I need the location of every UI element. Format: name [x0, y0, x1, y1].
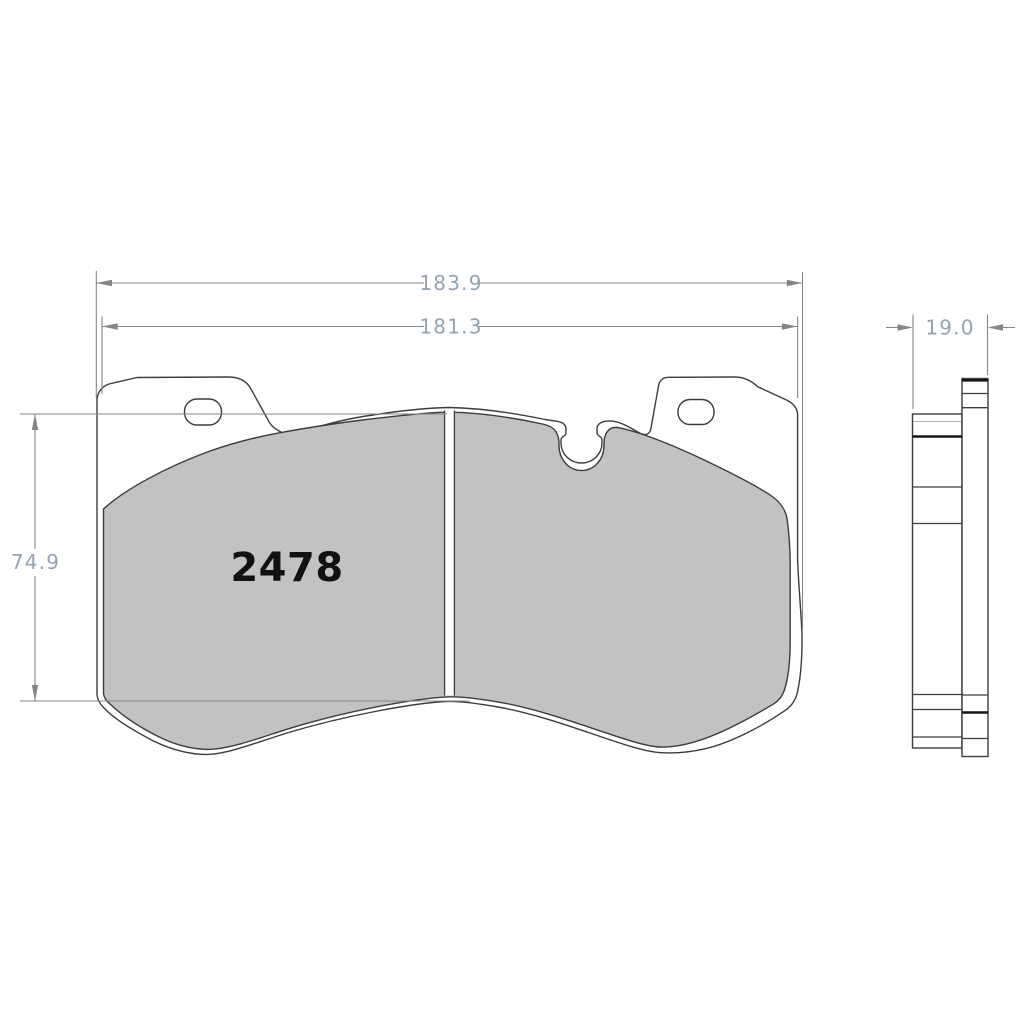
- brake-pad-technical-drawing: 2478: [0, 0, 1024, 1024]
- dim-pad-width-label: 181.3: [419, 315, 482, 339]
- arrowhead-left: [102, 323, 118, 329]
- arrowhead-right: [988, 324, 1004, 330]
- dim-overall-width-label: 183.9: [419, 271, 482, 295]
- side-backing-plate: [962, 379, 988, 757]
- center-slot-gap: [445, 411, 455, 696]
- side-view: [913, 379, 989, 757]
- arrowhead-right: [787, 280, 803, 286]
- right-ear-slot: [678, 400, 714, 425]
- side-friction-material: [913, 414, 963, 748]
- arrowhead-top: [32, 414, 38, 430]
- arrowhead-left: [898, 324, 914, 330]
- dim-pad-height-label: 74.9: [11, 550, 60, 574]
- left-ear-slot: [185, 399, 222, 425]
- arrowhead-bottom: [32, 685, 38, 701]
- front-view: 2478: [97, 377, 802, 754]
- arrowhead-left: [96, 280, 112, 286]
- drawing-canvas: 2478: [0, 0, 1024, 1024]
- arrowhead-right: [782, 323, 798, 329]
- dim-thickness: 19.0: [886, 315, 1015, 410]
- dim-thickness-label: 19.0: [925, 316, 974, 340]
- part-number-label: 2478: [230, 545, 343, 591]
- center-slot: [445, 411, 455, 696]
